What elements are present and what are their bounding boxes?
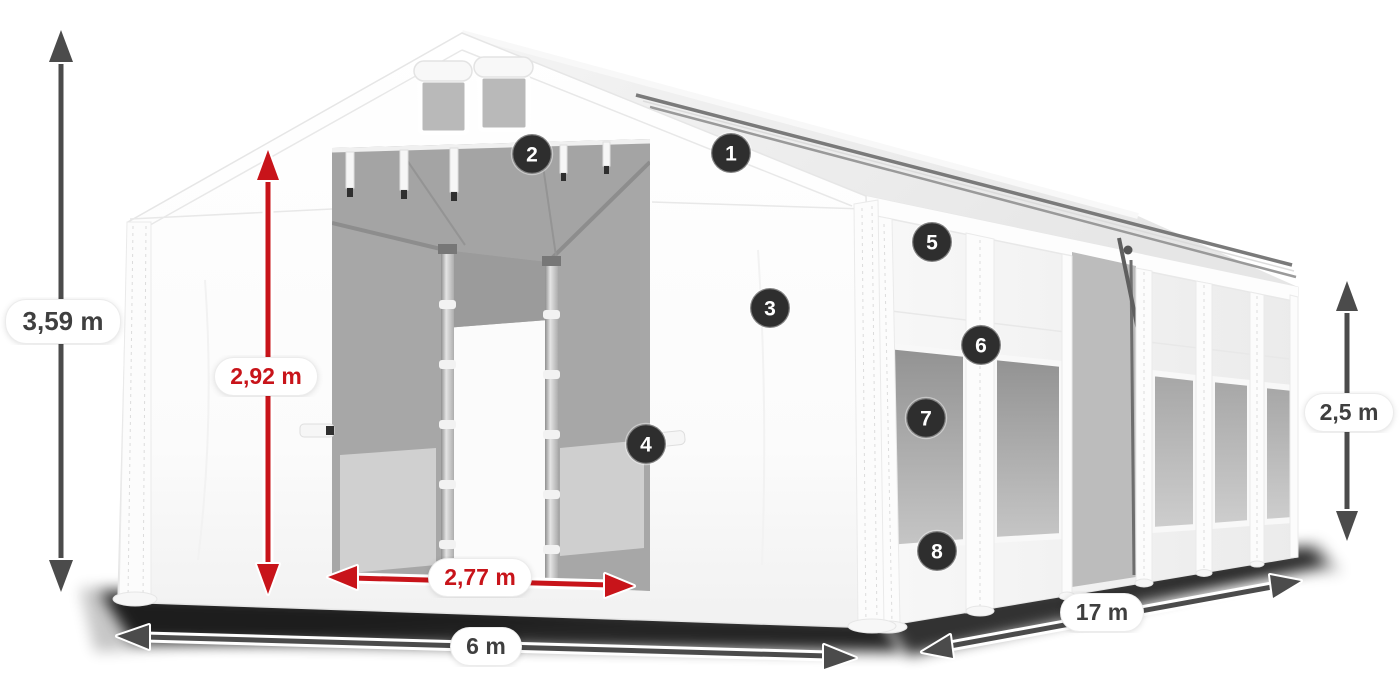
side-door-opening bbox=[1072, 238, 1138, 587]
badge-8: 8 bbox=[917, 531, 957, 571]
badge-7-number: 7 bbox=[920, 408, 932, 431]
badge-5: 5 bbox=[912, 222, 952, 262]
dim-value-entrance-height: 2,92 m bbox=[215, 358, 317, 395]
tent-dimension-diagram: 1 2 3 4 5 6 7 8 bbox=[0, 0, 1400, 700]
badge-6: 6 bbox=[961, 325, 1001, 365]
badge-2: 2 bbox=[512, 134, 552, 174]
badge-3: 3 bbox=[750, 288, 790, 328]
tent-illustration bbox=[113, 33, 1298, 633]
dim-label-front-width: 6 m bbox=[434, 625, 538, 667]
dim-label-entrance-height: 2,92 m bbox=[203, 355, 329, 397]
badge-3-number: 3 bbox=[764, 298, 776, 321]
badge-4: 4 bbox=[626, 424, 666, 464]
dim-value-entrance-width: 2,77 m bbox=[429, 559, 531, 596]
interior-far-opening bbox=[445, 320, 548, 588]
dim-value-front-width: 6 m bbox=[451, 628, 521, 665]
vent-window-left bbox=[420, 80, 467, 133]
dim-label-side-height: 2,5 m bbox=[1293, 391, 1400, 433]
badge-1-number: 1 bbox=[725, 143, 737, 166]
dim-label-side-length: 17 m bbox=[1046, 591, 1158, 633]
badge-7: 7 bbox=[906, 398, 946, 438]
dim-value-side-height: 2,5 m bbox=[1305, 394, 1394, 431]
dim-label-entrance-width: 2,77 m bbox=[417, 556, 543, 598]
vent-window-right bbox=[480, 76, 528, 130]
vent-roller-left bbox=[414, 61, 472, 81]
badge-4-number: 4 bbox=[640, 434, 652, 457]
side-window-1 bbox=[888, 346, 966, 548]
dim-value-total-height: 3,59 m bbox=[6, 300, 121, 343]
dim-label-total-height: 3,59 m bbox=[0, 297, 130, 345]
badge-8-number: 8 bbox=[931, 541, 943, 564]
badge-1: 1 bbox=[711, 133, 751, 173]
side-window-3 bbox=[1152, 373, 1196, 530]
vent-roller-right bbox=[474, 57, 533, 77]
side-window-4 bbox=[1212, 379, 1250, 526]
dim-value-side-length: 17 m bbox=[1061, 594, 1143, 631]
side-window-2 bbox=[994, 357, 1062, 540]
badge-6-number: 6 bbox=[975, 335, 987, 358]
badge-2-number: 2 bbox=[526, 144, 538, 167]
entrance-opening bbox=[332, 139, 650, 591]
side-window-5 bbox=[1264, 385, 1293, 522]
badge-5-number: 5 bbox=[926, 232, 938, 255]
